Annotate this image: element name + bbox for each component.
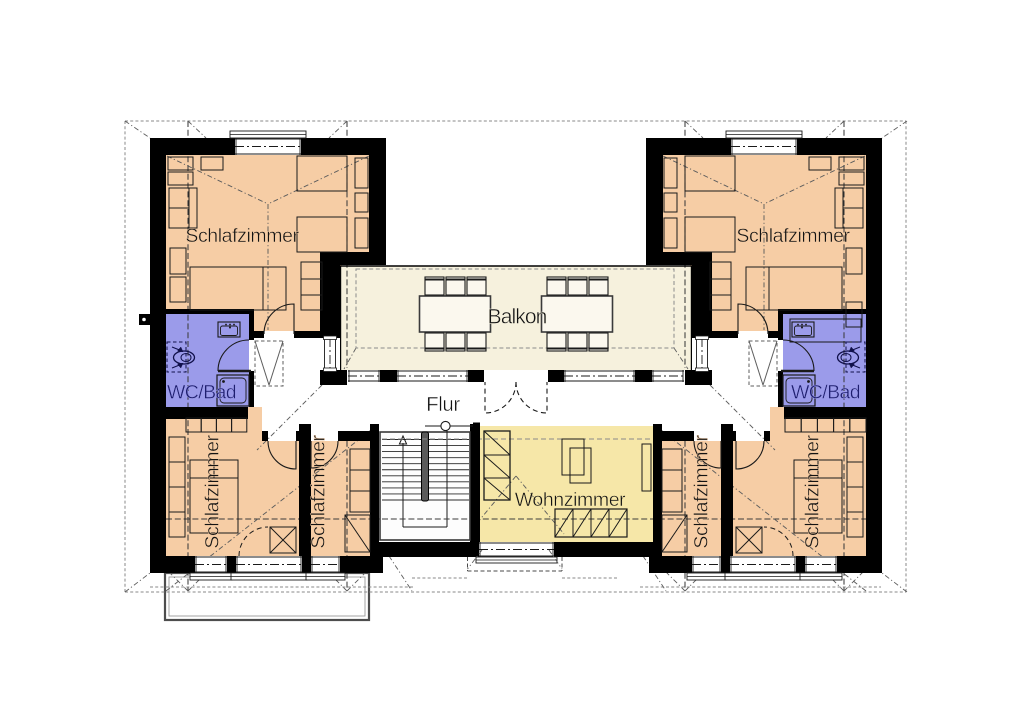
- svg-text:Wohnzimmer: Wohnzimmer: [515, 489, 626, 511]
- svg-text:Schlafzimmer: Schlafzimmer: [202, 434, 224, 548]
- svg-text:WC/Bad: WC/Bad: [791, 382, 860, 404]
- svg-text:Flur: Flur: [426, 393, 460, 416]
- svg-text:Schlafzimmer: Schlafzimmer: [185, 225, 299, 247]
- svg-text:WC/Bad: WC/Bad: [167, 382, 236, 404]
- svg-text:Schlafzimmer: Schlafzimmer: [691, 434, 713, 548]
- svg-text:Balkon: Balkon: [488, 306, 547, 329]
- svg-text:Schlafzimmer: Schlafzimmer: [308, 434, 330, 548]
- svg-text:Schlafzimmer: Schlafzimmer: [802, 434, 824, 548]
- svg-text:Schlafzimmer: Schlafzimmer: [736, 225, 850, 247]
